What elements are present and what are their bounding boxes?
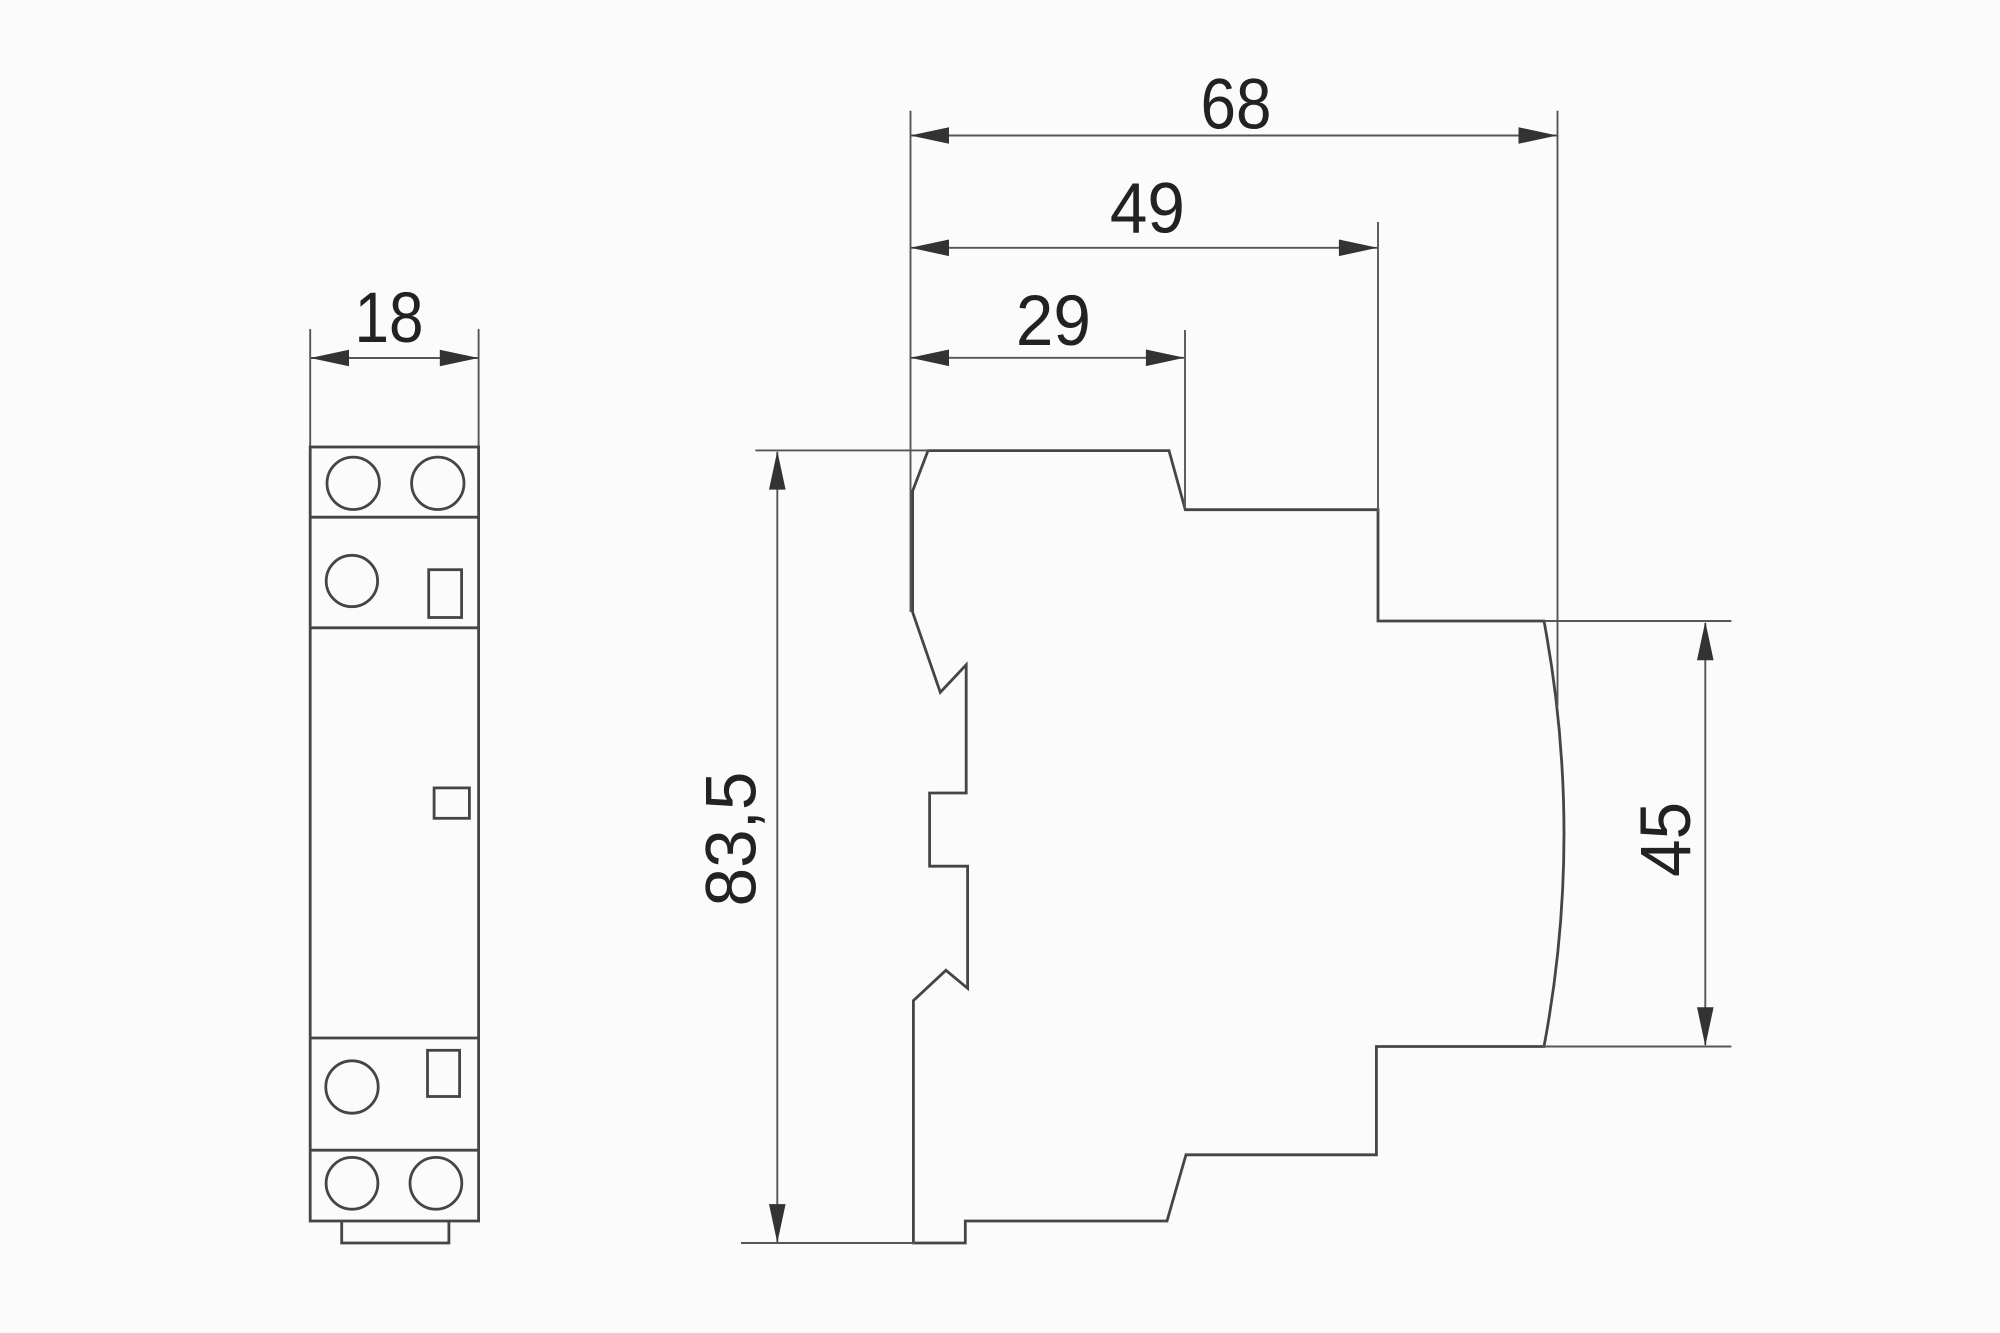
svg-text:83,5: 83,5 [693, 772, 772, 907]
svg-text:49: 49 [1110, 170, 1185, 249]
svg-text:45: 45 [1627, 802, 1706, 877]
svg-text:29: 29 [1016, 282, 1091, 361]
svg-text:18: 18 [355, 279, 424, 358]
svg-text:68: 68 [1201, 66, 1272, 145]
